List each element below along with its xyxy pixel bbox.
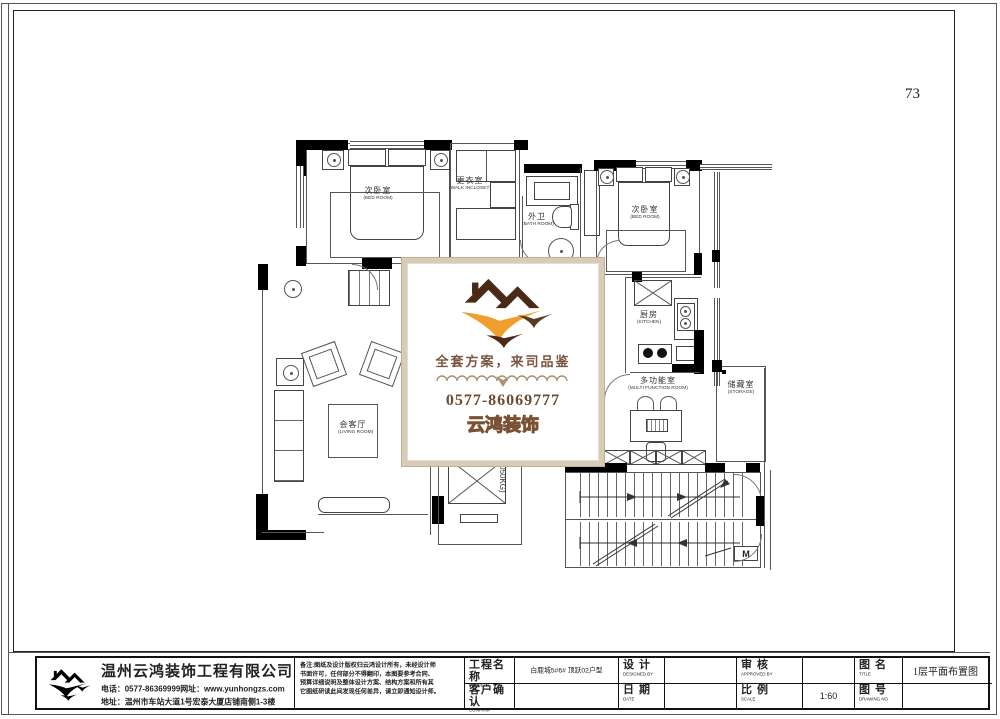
field-project-value: 白鹿城5#6# 顶跃02户型 xyxy=(514,658,618,683)
wardrobe xyxy=(456,208,516,240)
field-label-en: DRAWING NO xyxy=(859,697,883,701)
room-name-cn: 更衣室 xyxy=(435,176,505,185)
room-name-cn: 会客厅 xyxy=(328,420,378,429)
company-phone-line: 电话：0577-86369999网址：www.yunhongzs.com xyxy=(101,683,270,694)
chair xyxy=(660,396,677,411)
table-lamp-icon xyxy=(600,170,614,184)
keyboard xyxy=(646,419,668,432)
wall-segment xyxy=(300,140,348,150)
bed-pillow xyxy=(616,167,643,182)
field-label-cn: 图 号 xyxy=(859,685,902,697)
note-line: 书面许可，任何部分不得翻印，本图要参考合同、 xyxy=(300,670,464,679)
notes-cell: 备注:图纸及设计版权归云鸿设计所有，未经设计师 书面许可，任何部分不得翻印，本图… xyxy=(294,658,464,708)
wall-segment xyxy=(514,140,528,150)
room-name-en: (KITCHEN) xyxy=(634,319,664,325)
room-label-bathroom: 外卫 (BATH ROOM) xyxy=(512,212,562,230)
field-label-en: CONFIRM xyxy=(469,708,494,712)
field-drawing-no-label: 图 号 DRAWING NO xyxy=(854,683,902,708)
sink-basin xyxy=(680,306,691,317)
room-label-multi-function: 多功能室 (MULTI FUNCTION ROOM) xyxy=(608,376,708,394)
room-name-en: (BATH ROOM) xyxy=(522,221,552,227)
field-label-cn: 审 核 xyxy=(741,660,802,672)
wall-segment xyxy=(524,164,582,173)
wall-line xyxy=(630,372,700,373)
floor-lamp-icon xyxy=(283,365,299,381)
room-name-en: (STORAGE) xyxy=(726,389,756,395)
field-label-en: TITLE xyxy=(859,672,883,676)
bench xyxy=(318,497,390,513)
wall-segment xyxy=(362,258,392,269)
room-label-kitchen: 厨房 (KITCHEN) xyxy=(624,310,674,328)
wall-line xyxy=(430,455,431,535)
wall-segment xyxy=(746,463,760,472)
note-line: 预算详细说明及整体设计方案、结构方案和所有其 xyxy=(300,679,464,688)
burner xyxy=(643,348,653,358)
field-label-cn: 日 期 xyxy=(623,685,664,697)
field-value-text: 白鹿城5#6# 顶跃02户型 xyxy=(530,666,602,675)
wall-segment xyxy=(296,246,306,266)
window xyxy=(350,141,424,149)
wall-dot xyxy=(722,370,726,374)
field-label-cn: 比 例 xyxy=(741,685,802,697)
field-label-en: DATE xyxy=(623,697,646,701)
room-name-cn: 储藏室 xyxy=(716,380,766,389)
wall-segment xyxy=(694,253,702,275)
room-label-storage: 储藏室 (STORAGE) xyxy=(716,380,766,398)
window-seat xyxy=(656,450,682,465)
sofa-cabinet xyxy=(274,390,304,482)
window xyxy=(700,164,772,170)
round-stool xyxy=(284,280,302,298)
bed-pillow xyxy=(348,149,386,166)
room-name-cn: 多功能室 xyxy=(608,376,708,385)
company-logo-mono-icon xyxy=(43,662,93,704)
watermark-card: 全套方案，来司品鉴 0577-86069777 云鸿装饰 xyxy=(402,258,604,466)
chair xyxy=(637,396,654,411)
field-label-en: DESIGNED BY xyxy=(623,672,646,676)
room-name-en: (LIVING ROOM) xyxy=(338,429,368,435)
field-approved-label: 审 核 APPROVED BY xyxy=(736,658,802,683)
note-line: 备注:图纸及设计版权归云鸿设计所有，未经设计师 xyxy=(300,661,464,670)
window xyxy=(714,172,720,288)
room-name-en: (BED ROOM) xyxy=(360,195,396,201)
room-name-cn: 次卧室 xyxy=(348,186,408,195)
window-seat xyxy=(630,450,656,465)
window xyxy=(296,166,304,228)
wall-line xyxy=(318,514,428,515)
field-date-value xyxy=(664,683,736,708)
field-drawing-no-value xyxy=(902,683,988,708)
company-info: 温州云鸿装饰工程有限公司 电话：0577-86369999网址：www.yunh… xyxy=(101,660,293,706)
company-logo-icon xyxy=(444,268,562,350)
wall-segment xyxy=(258,264,268,290)
table-lamp-icon xyxy=(434,153,448,167)
room-name-en: (BED ROOM) xyxy=(627,214,663,220)
drawing-sheet: 73 次卧室 (BED ROOM) 更衣室 (WALK INCLOSET) xyxy=(0,0,1000,719)
bed-pillow xyxy=(645,167,672,182)
bed-pillow xyxy=(388,149,426,166)
field-value-text: 1:60 xyxy=(820,691,838,701)
wall-segment xyxy=(712,360,722,372)
field-label-cn: 客户确认 xyxy=(469,685,514,708)
room-label-living-room: 会客厅 (LIVING ROOM) xyxy=(328,420,378,438)
stair-direction-marks xyxy=(565,472,761,568)
field-confirm-label: 客户确认 CONFIRM xyxy=(464,683,514,708)
ornament-flourish-icon xyxy=(433,372,573,390)
room-name-cn: 次卧室 xyxy=(615,205,675,214)
elevator-counterweight xyxy=(460,514,498,523)
field-design-label: 设 计 DESIGNED BY xyxy=(618,658,664,683)
bath-sink xyxy=(534,182,570,200)
room-name-en: (WALK INCLOSET) xyxy=(449,185,491,191)
wall-segment xyxy=(756,496,764,526)
field-design-value xyxy=(664,658,736,683)
field-drawing-name-label: 图 名 TITLE xyxy=(854,658,902,683)
kitchen-cabinet xyxy=(634,280,672,306)
field-label-cn: 设 计 xyxy=(623,660,664,672)
field-label-en: SCALE xyxy=(741,697,775,701)
table-lamp-icon xyxy=(327,153,341,167)
field-date-label: 日 期 DATE xyxy=(618,683,664,708)
room-label-bedroom-left: 次卧室 (BED ROOM) xyxy=(348,186,408,204)
company-name: 温州云鸿装饰工程有限公司 xyxy=(101,660,293,681)
title-block: 温州云鸿装饰工程有限公司 电话：0577-86369999网址：www.yunh… xyxy=(35,656,990,710)
field-value-text: 1层平面布置图 xyxy=(913,663,978,678)
elevator-capacity-label: (1050KG) xyxy=(498,458,507,522)
field-label-cn: 图 名 xyxy=(859,660,902,672)
watermark-slogan: 全套方案，来司品鉴 xyxy=(435,351,570,370)
company-address-line: 地址：温州市车站大道1号宏泰大厦店铺南侧1-3楼 xyxy=(101,696,270,707)
wall-segment xyxy=(705,463,725,472)
field-label-cn: 工程名称 xyxy=(469,660,514,683)
room-name-cn: 外卫 xyxy=(512,212,562,221)
wall-segment xyxy=(712,250,720,262)
field-confirm-value xyxy=(514,683,618,708)
note-line: 它图纸研读此间发现任何差异，请立即通知设计师。 xyxy=(300,687,464,696)
wall-segment xyxy=(424,140,452,150)
room-label-bedroom-right: 次卧室 (BED ROOM) xyxy=(615,205,675,223)
burner xyxy=(657,348,667,358)
wall-line xyxy=(262,532,324,533)
field-label-en: APPROVED BY xyxy=(741,672,775,676)
field-scale-label: 比 例 SCALE xyxy=(736,683,802,708)
watermark-brand-text: 云鸿装饰 xyxy=(467,414,539,435)
room-name-en: (MULTI FUNCTION ROOM) xyxy=(628,385,688,391)
sink-basin xyxy=(680,318,691,329)
room-label-walk-in-closet: 更衣室 (WALK INCLOSET) xyxy=(435,176,505,194)
field-scale-value: 1:60 xyxy=(802,683,854,708)
window-seat xyxy=(682,450,706,465)
room-name-cn: 厨房 xyxy=(624,310,674,319)
watermark-brand: 云鸿装饰 xyxy=(428,413,578,437)
field-approved-value xyxy=(802,658,854,683)
field-project-label: 工程名称 PROJECT xyxy=(464,658,514,683)
table-lamp-icon xyxy=(676,170,690,184)
watermark-phone: 0577-86069777 xyxy=(446,392,560,410)
wall-line xyxy=(770,470,771,570)
field-drawing-name-value: 1层平面布置图 xyxy=(902,658,988,683)
